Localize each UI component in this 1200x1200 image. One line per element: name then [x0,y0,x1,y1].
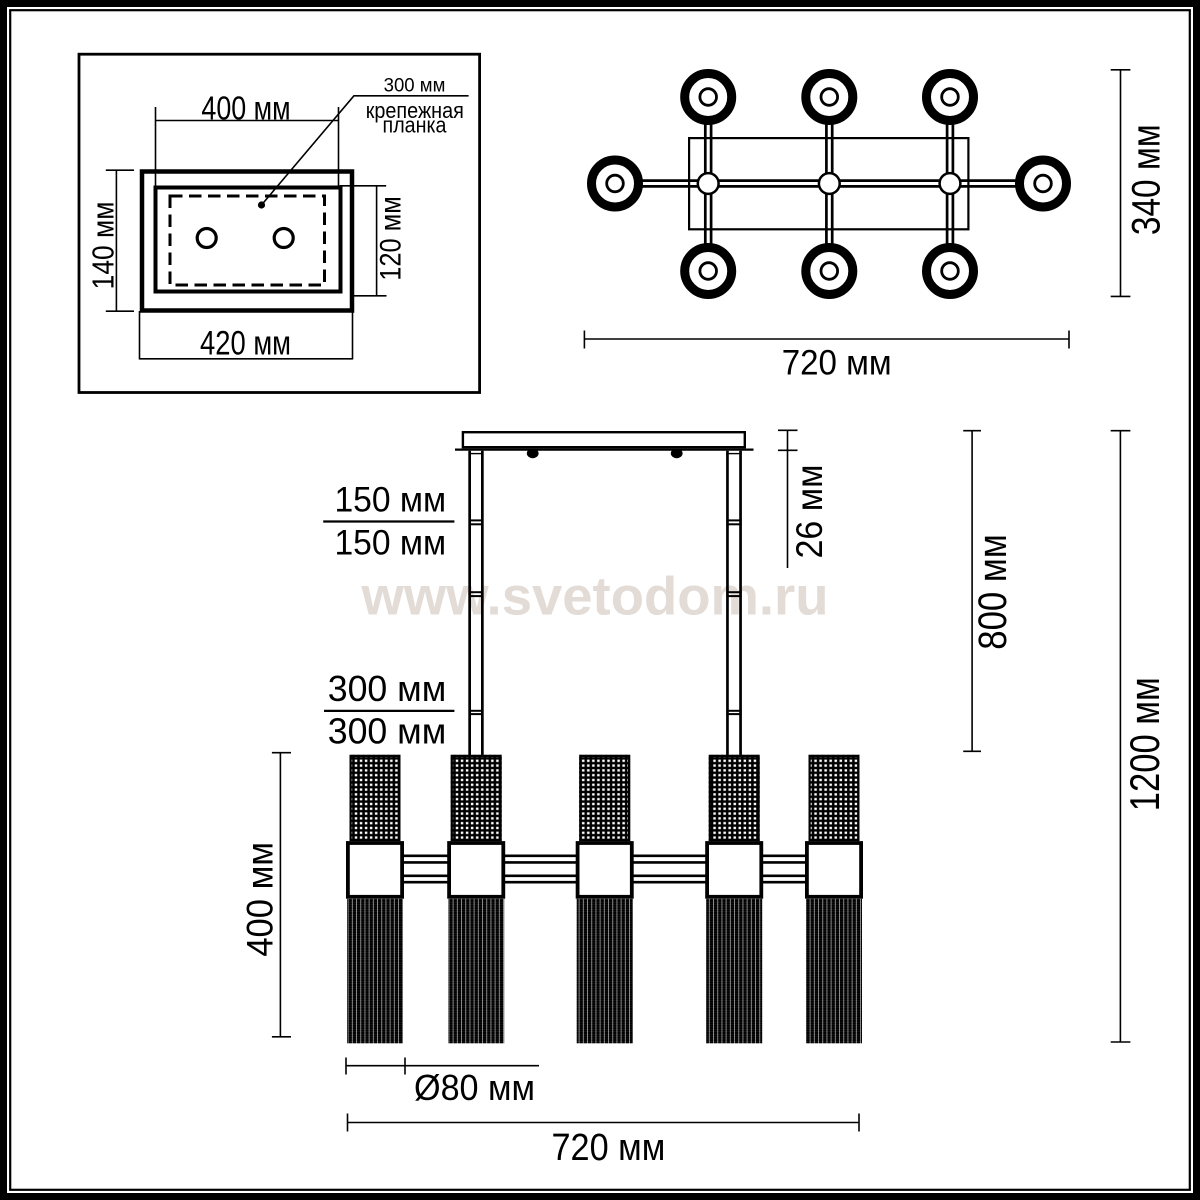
svg-text:400 мм: 400 мм [201,91,290,128]
svg-text:400 мм: 400 мм [239,842,281,957]
svg-text:340 мм: 340 мм [1125,124,1169,235]
svg-text:300 мм: 300 мм [328,668,447,709]
svg-text:150 мм: 150 мм [334,523,446,563]
svg-text:1200 мм: 1200 мм [1121,677,1168,811]
svg-text:www.svetodom.ru: www.svetodom.ru [360,566,828,626]
svg-text:26 мм: 26 мм [789,464,830,558]
svg-text:планка: планка [383,113,448,138]
svg-text:300 мм: 300 мм [384,75,446,97]
svg-text:120 мм: 120 мм [375,196,408,281]
svg-text:800 мм: 800 мм [971,534,1015,650]
svg-text:Ø80 мм: Ø80 мм [414,1067,535,1108]
svg-text:720 мм: 720 мм [552,1127,666,1169]
svg-text:720 мм: 720 мм [782,342,892,382]
svg-text:300 мм: 300 мм [328,711,447,752]
svg-text:420 мм: 420 мм [200,325,291,363]
svg-text:150 мм: 150 мм [334,480,446,520]
svg-text:140 мм: 140 мм [86,202,121,290]
